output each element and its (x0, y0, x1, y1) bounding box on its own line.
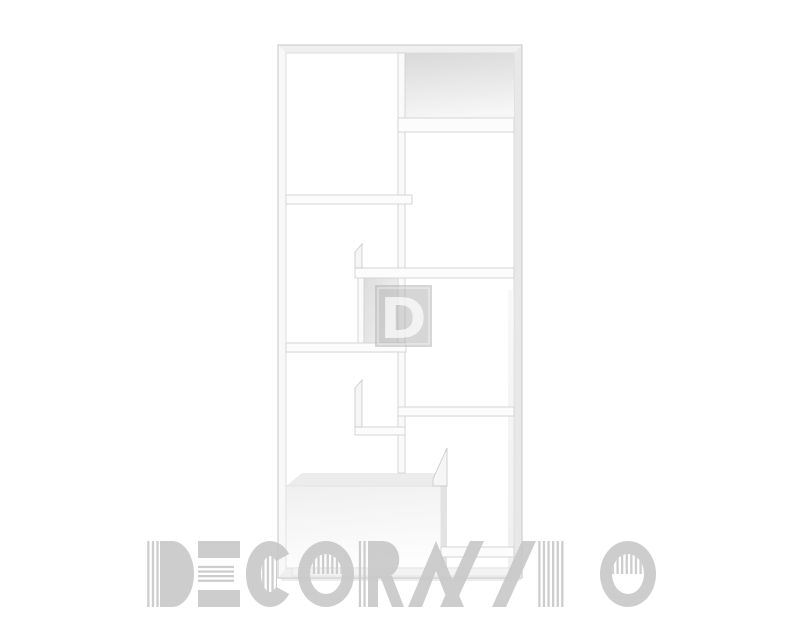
right-wall-shade (508, 290, 514, 568)
brand-logo-watermark: D (375, 285, 432, 352)
product-image: D (0, 0, 806, 636)
logo-letter: D (380, 287, 426, 352)
bottom-box-top-face (286, 473, 441, 486)
top-right-back-panel (403, 53, 514, 119)
product-page: D (0, 0, 806, 636)
